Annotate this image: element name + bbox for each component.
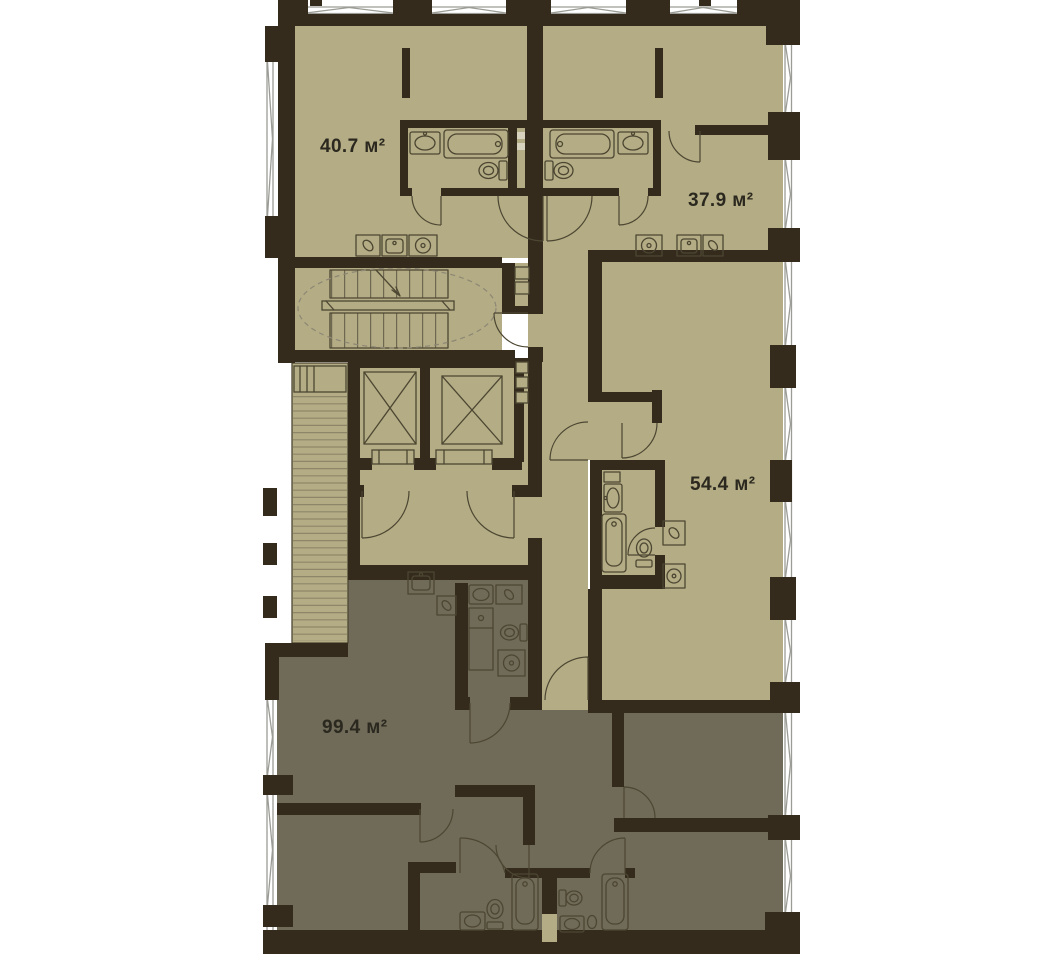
vent-shaft-icon xyxy=(515,267,529,279)
area-label-apt-1: 40.7 м² xyxy=(320,136,385,157)
party-wall xyxy=(527,26,543,126)
area-label-apt-4: 99.4 м² xyxy=(322,717,387,738)
vent-shaft-icon xyxy=(516,362,528,373)
floor-elevator-1 xyxy=(360,368,420,452)
stair-landing-rail xyxy=(322,301,454,310)
gallery-top-box xyxy=(294,366,346,392)
area-label-apt-3: 54.4 м² xyxy=(690,474,755,495)
floor-plan: 40.7 м² 37.9 м² 54.4 м² 99.4 м² xyxy=(0,0,1062,960)
vent-shaft-icon xyxy=(516,377,528,388)
floor-plan-canvas: 40.7 м² 37.9 м² 54.4 м² 99.4 м² xyxy=(0,0,1062,960)
apartment-37-9[interactable]: 37.9 м² xyxy=(545,26,783,250)
vent-shaft-icon xyxy=(515,282,529,294)
area-label-apt-2: 37.9 м² xyxy=(688,190,753,211)
vent-shaft-icon xyxy=(516,392,528,403)
apartment-40-7[interactable]: 40.7 м² xyxy=(295,26,525,256)
apartment-99-4[interactable]: 99.4 м² xyxy=(277,580,783,930)
